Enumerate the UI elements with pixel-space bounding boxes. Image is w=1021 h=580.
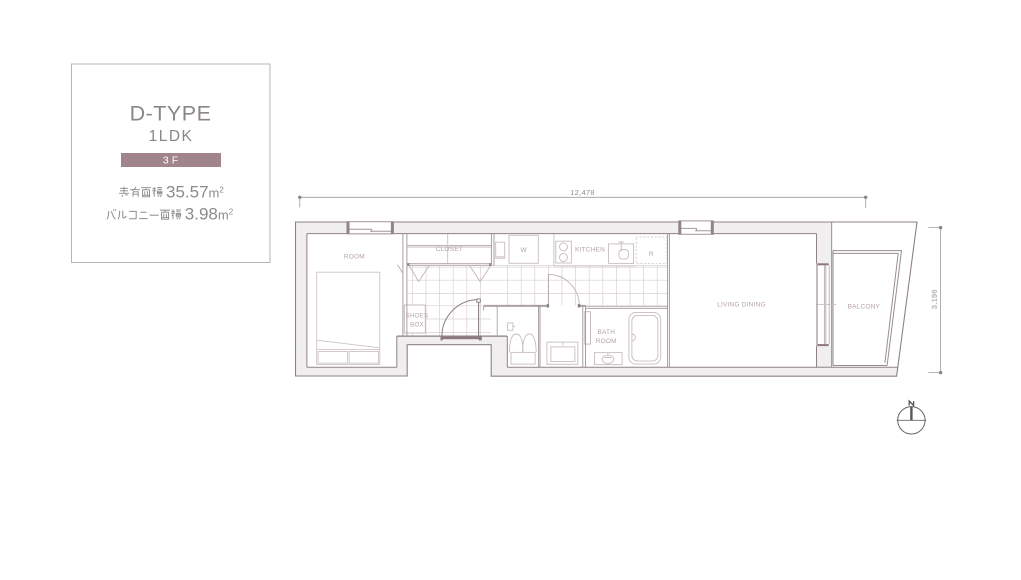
svg-text:CLOSET: CLOSET xyxy=(436,246,463,253)
svg-text:W: W xyxy=(521,247,528,254)
svg-text:BALCONY: BALCONY xyxy=(848,304,881,311)
svg-text:12,478: 12,478 xyxy=(570,188,595,197)
svg-text:BATH: BATH xyxy=(597,329,615,336)
svg-text:ROOM: ROOM xyxy=(596,338,617,345)
svg-text:1LDK: 1LDK xyxy=(149,128,194,145)
svg-text:D-TYPE: D-TYPE xyxy=(130,102,212,126)
svg-text:LIVING DINING: LIVING DINING xyxy=(717,301,765,308)
svg-text:3.98m2: 3.98m2 xyxy=(185,205,234,224)
svg-text:BOX: BOX xyxy=(410,321,424,328)
svg-text:3,196: 3,196 xyxy=(930,289,939,309)
svg-text:SHOES: SHOES xyxy=(406,312,429,319)
svg-text:35.57m2: 35.57m2 xyxy=(166,182,224,201)
svg-text:ROOM: ROOM xyxy=(344,254,365,261)
svg-text:3F: 3F xyxy=(163,154,181,166)
svg-text:KITCHEN: KITCHEN xyxy=(575,247,605,254)
svg-text:R: R xyxy=(649,251,654,258)
